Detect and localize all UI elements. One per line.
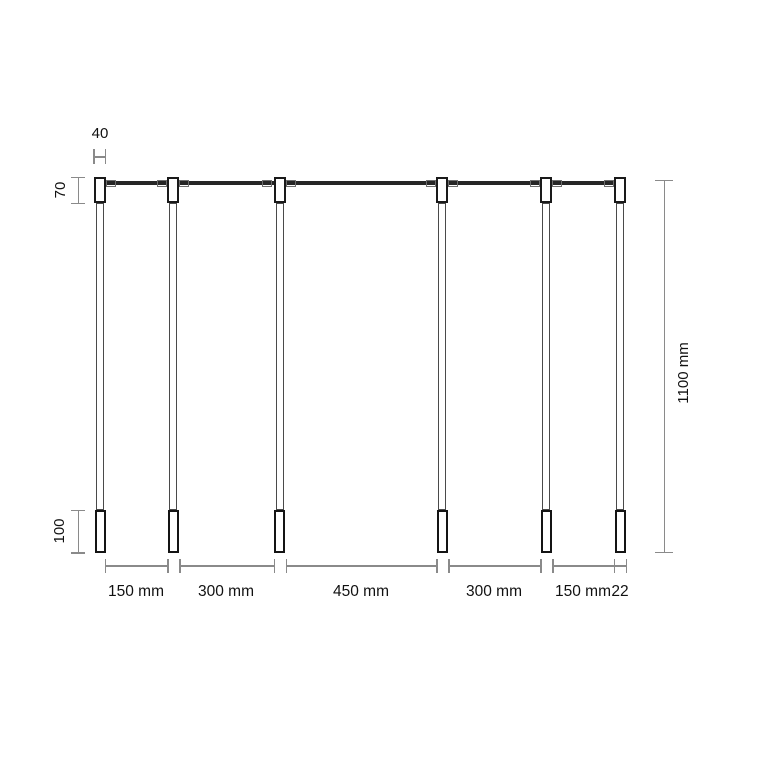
dim-tick bbox=[71, 203, 85, 205]
rail-connector bbox=[179, 180, 189, 187]
dim-bottom-section-height-label: 100 bbox=[51, 509, 65, 553]
rail-connector bbox=[604, 180, 614, 187]
post-6-base bbox=[615, 510, 626, 553]
dim-post-top-width-label: 40 bbox=[80, 125, 120, 143]
dim-spacing-2-label: 300 mm bbox=[186, 583, 266, 601]
dim-line bbox=[78, 510, 80, 553]
dim-tick bbox=[436, 559, 438, 573]
dim-tick bbox=[71, 552, 85, 554]
rail-connector bbox=[426, 180, 436, 187]
post-1-cap bbox=[94, 177, 106, 203]
post-1-base bbox=[95, 510, 106, 553]
post-2-cap bbox=[167, 177, 179, 203]
rail-connector bbox=[286, 180, 296, 187]
dim-tick bbox=[179, 559, 181, 573]
dim-tick bbox=[167, 559, 169, 573]
dim-line bbox=[664, 180, 666, 552]
technical-drawing: 40 70 100 1100 mm bbox=[0, 0, 768, 768]
post-3-cap bbox=[274, 177, 286, 203]
dim-tick bbox=[448, 559, 450, 573]
dim-tick bbox=[274, 559, 276, 573]
post-5-body bbox=[542, 203, 550, 510]
dim-spacing-1-label: 150 mm bbox=[96, 583, 176, 601]
dim-tick bbox=[540, 559, 542, 573]
rail-connector bbox=[262, 180, 272, 187]
post-1-body bbox=[96, 203, 104, 510]
dim-spacing-3-label: 450 mm bbox=[321, 583, 401, 601]
rail-connector bbox=[157, 180, 167, 187]
dim-top-section-height-label: 70 bbox=[52, 170, 66, 210]
rail-connector bbox=[448, 180, 458, 187]
dim-post-width-label: 22 bbox=[606, 583, 634, 601]
post-4-cap bbox=[436, 177, 448, 203]
rail-connector bbox=[552, 180, 562, 187]
dim-line bbox=[552, 565, 614, 567]
dim-spacing-4-label: 300 mm bbox=[454, 583, 534, 601]
dim-line bbox=[105, 565, 168, 567]
post-4-body bbox=[438, 203, 446, 510]
dim-tick bbox=[552, 559, 554, 573]
dim-line bbox=[93, 156, 106, 158]
dim-line bbox=[179, 565, 274, 567]
dim-line bbox=[614, 565, 626, 567]
post-3-body bbox=[276, 203, 284, 510]
rail-connector bbox=[530, 180, 540, 187]
dim-line bbox=[448, 565, 540, 567]
dim-tick bbox=[614, 559, 616, 573]
dim-tick bbox=[626, 559, 628, 573]
post-2-body bbox=[169, 203, 177, 510]
dim-tick bbox=[655, 552, 673, 554]
post-5-cap bbox=[540, 177, 552, 203]
post-4-base bbox=[437, 510, 448, 553]
post-2-base bbox=[168, 510, 179, 553]
rail-connector bbox=[106, 180, 116, 187]
post-6-cap bbox=[614, 177, 626, 203]
dim-tick bbox=[286, 559, 288, 573]
post-5-base bbox=[541, 510, 552, 553]
dim-line bbox=[286, 565, 437, 567]
dim-overall-height-label: 1100 mm bbox=[675, 338, 691, 408]
dim-tick bbox=[105, 559, 107, 573]
post-6-body bbox=[616, 203, 624, 510]
post-3-base bbox=[274, 510, 285, 553]
dim-line bbox=[78, 177, 80, 203]
